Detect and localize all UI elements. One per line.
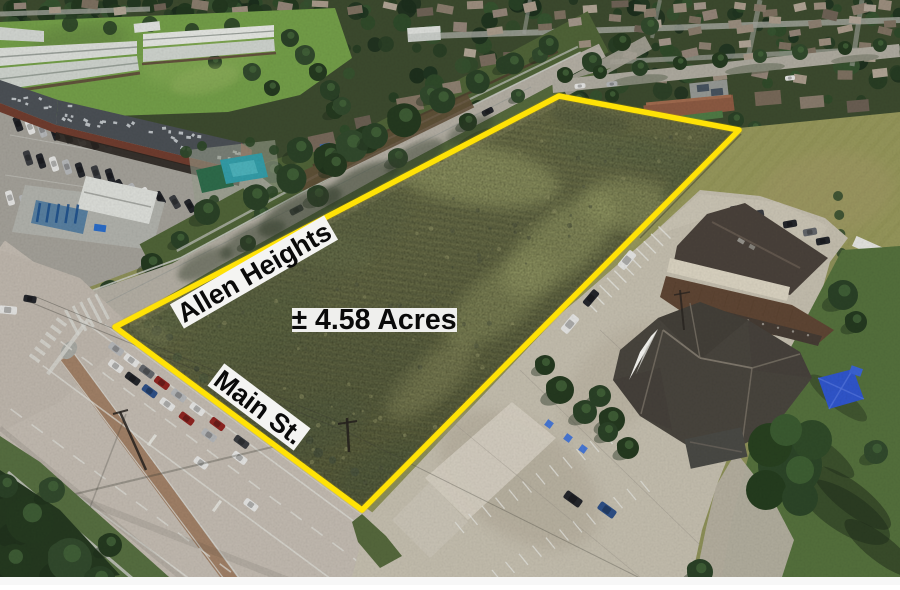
svg-text:± 4.58 Acres: ± 4.58 Acres [291,304,456,336]
